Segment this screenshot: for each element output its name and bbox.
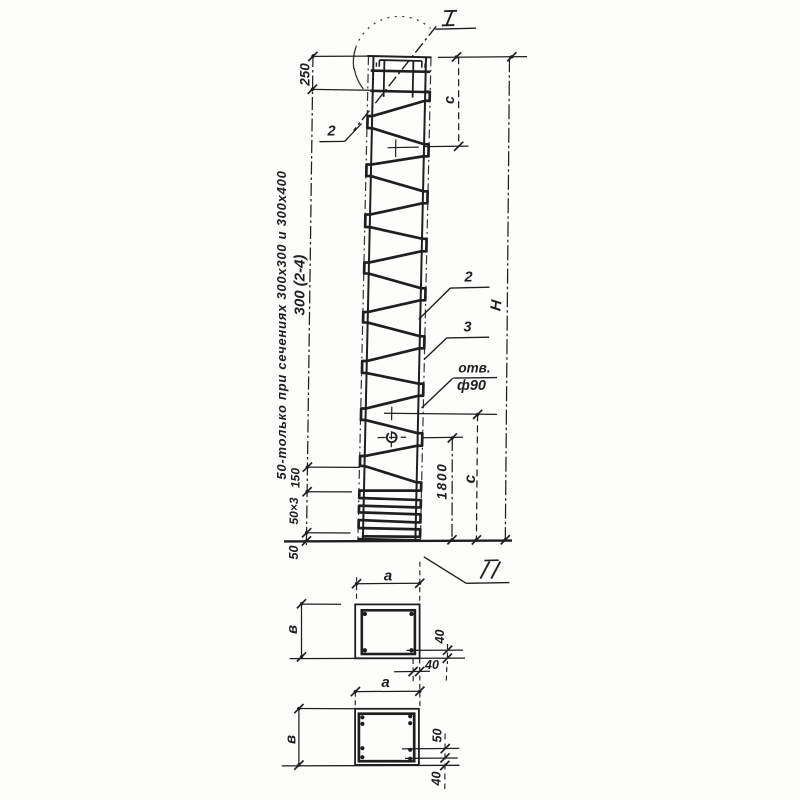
svg-text:1800: 1800 (435, 462, 450, 499)
svg-text:2: 2 (326, 124, 335, 140)
svg-text:отв.: отв. (458, 361, 490, 376)
svg-text:250: 250 (298, 63, 313, 87)
svg-text:50-только при сечениях 300х300: 50-только при сечениях 300х300 и 300х400 (274, 170, 289, 479)
svg-text:40: 40 (430, 772, 444, 787)
svg-text:a: a (381, 674, 389, 691)
svg-text:40: 40 (433, 630, 447, 645)
svg-text:150: 150 (289, 468, 303, 488)
svg-text:a: a (384, 567, 392, 584)
svg-text:c: c (462, 474, 479, 483)
svg-text:в: в (284, 625, 301, 634)
svg-text:300 (2-4): 300 (2-4) (292, 255, 309, 316)
svg-text:50×3: 50×3 (287, 497, 301, 524)
svg-text:40: 40 (424, 658, 439, 672)
svg-text:50: 50 (431, 729, 445, 743)
svg-text:50: 50 (287, 546, 301, 560)
svg-text:2: 2 (463, 270, 472, 286)
svg-text:в: в (283, 735, 300, 744)
svg-text:3: 3 (463, 320, 471, 336)
svg-text:c: c (442, 96, 458, 104)
svg-text:ф90: ф90 (457, 378, 486, 394)
